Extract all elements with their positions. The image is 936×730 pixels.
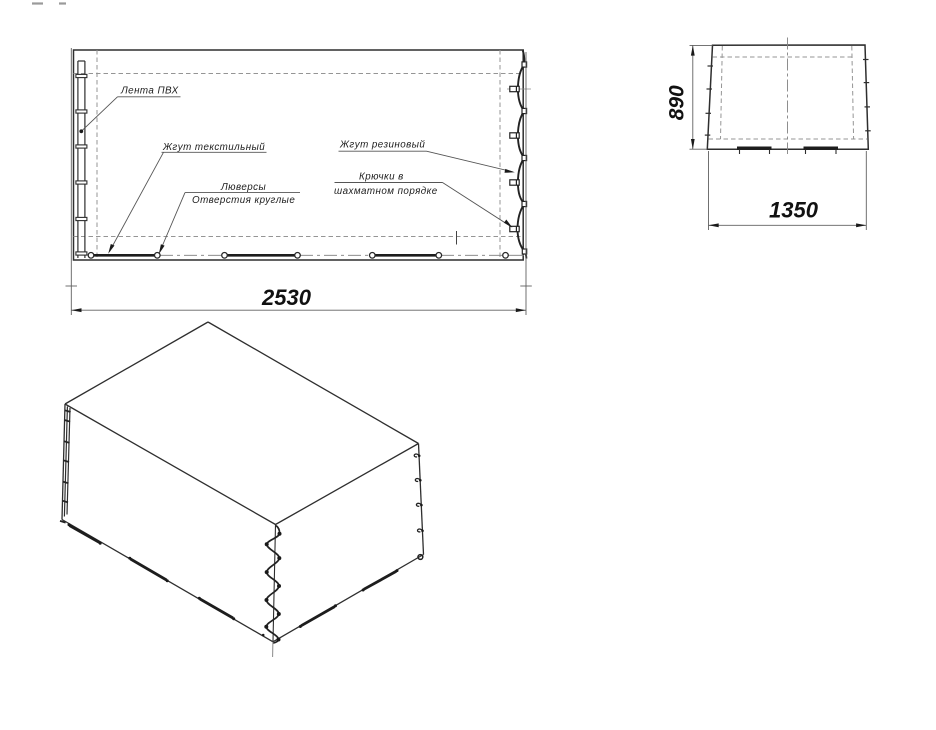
svg-text:2530: 2530 (261, 285, 312, 310)
svg-text:1350: 1350 (769, 198, 819, 223)
svg-text:Жгут резиновый: Жгут резиновый (339, 140, 425, 151)
svg-text:шахматном порядке: шахматном порядке (334, 186, 438, 197)
svg-text:Крючки в: Крючки в (359, 172, 404, 183)
svg-text:Люверсы: Люверсы (220, 182, 266, 193)
svg-text:Отверстия круглые: Отверстия круглые (192, 195, 295, 206)
svg-text:890: 890 (666, 85, 689, 120)
svg-text:Жгут текстильный: Жгут текстильный (162, 142, 265, 153)
svg-text:Лента ПВХ: Лента ПВХ (120, 86, 179, 97)
